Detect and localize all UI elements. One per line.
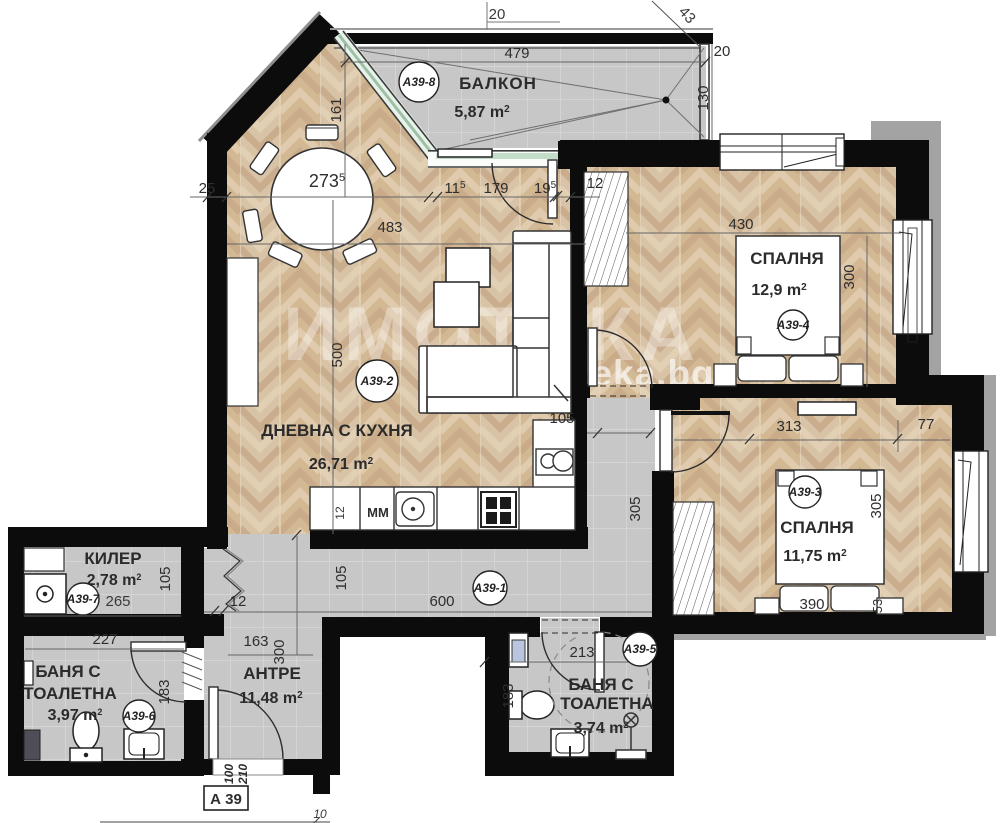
svg-text:213: 213 [569, 644, 594, 661]
svg-text:161: 161 [328, 97, 345, 122]
svg-text:5,87 m2: 5,87 m2 [454, 104, 510, 121]
svg-text:163: 163 [243, 633, 268, 650]
svg-text:313: 313 [776, 418, 801, 435]
svg-text:ММ: ММ [367, 505, 389, 520]
svg-text:300: 300 [271, 639, 288, 664]
svg-text:100: 100 [222, 764, 236, 784]
svg-text:3,97 m2: 3,97 m2 [48, 707, 103, 724]
svg-text:ТОАЛЕТНА: ТОАЛЕТНА [560, 694, 653, 713]
svg-text:БАЛКОН: БАЛКОН [459, 74, 537, 93]
svg-text:А39-5: А39-5 [623, 642, 657, 656]
svg-text:500: 500 [329, 342, 346, 367]
svg-text:10: 10 [313, 807, 327, 821]
svg-text:СПАЛНЯ: СПАЛНЯ [780, 518, 853, 537]
svg-text:130: 130 [695, 85, 712, 110]
svg-text:305: 305 [868, 493, 885, 518]
svg-text:12,9 m2: 12,9 m2 [751, 282, 807, 299]
svg-text:600: 600 [429, 593, 454, 610]
svg-text:СПАЛНЯ: СПАЛНЯ [750, 249, 823, 268]
svg-text:КИЛЕР: КИЛЕР [84, 549, 141, 568]
svg-text:А 39: А 39 [210, 791, 242, 808]
svg-text:12: 12 [333, 506, 347, 520]
svg-text:БАНЯ С: БАНЯ С [35, 662, 100, 681]
svg-text:А39-4: А39-4 [776, 318, 810, 332]
svg-text:390: 390 [799, 596, 824, 613]
svg-text:105: 105 [549, 410, 574, 427]
svg-text:26,71 m2: 26,71 m2 [309, 456, 374, 473]
svg-text:479: 479 [504, 45, 529, 62]
svg-text:ТОАЛЕТНА: ТОАЛЕТНА [23, 684, 116, 703]
svg-text:430: 430 [728, 216, 753, 233]
svg-text:20: 20 [714, 43, 731, 60]
svg-text:265: 265 [105, 593, 130, 610]
svg-text:2,78 m2: 2,78 m2 [87, 572, 142, 589]
svg-text:25: 25 [199, 180, 216, 197]
svg-text:183: 183 [500, 683, 517, 708]
svg-text:483: 483 [377, 219, 402, 236]
svg-text:А39-3: А39-3 [788, 485, 822, 499]
svg-text:105: 105 [157, 566, 174, 591]
svg-text:300: 300 [841, 264, 858, 289]
svg-text:20: 20 [489, 6, 506, 23]
svg-text:105: 105 [333, 565, 350, 590]
svg-text:БАНЯ С: БАНЯ С [568, 675, 633, 694]
svg-text:А39-8: А39-8 [402, 75, 436, 89]
svg-text:А39-1: А39-1 [473, 581, 507, 595]
svg-text:210: 210 [236, 764, 250, 785]
svg-text:183: 183 [156, 679, 173, 704]
svg-text:305: 305 [627, 496, 644, 521]
svg-text:3,74 m2: 3,74 m2 [574, 720, 629, 737]
svg-text:А39-2: А39-2 [360, 374, 394, 388]
svg-text:А39-6: А39-6 [122, 709, 156, 723]
svg-text:179: 179 [483, 180, 508, 197]
svg-text:77: 77 [918, 416, 935, 433]
svg-text:ДНЕВНА С КУХНЯ: ДНЕВНА С КУХНЯ [261, 421, 413, 440]
svg-text:227: 227 [92, 631, 117, 648]
svg-text:11,48 m2: 11,48 m2 [239, 690, 303, 707]
svg-text:12: 12 [230, 593, 247, 610]
svg-text:А39-7: А39-7 [66, 592, 101, 606]
svg-text:12: 12 [587, 175, 604, 192]
svg-text:11,75 m2: 11,75 m2 [783, 548, 847, 565]
svg-text:53: 53 [870, 599, 885, 613]
svg-text:АНТРЕ: АНТРЕ [243, 664, 301, 683]
